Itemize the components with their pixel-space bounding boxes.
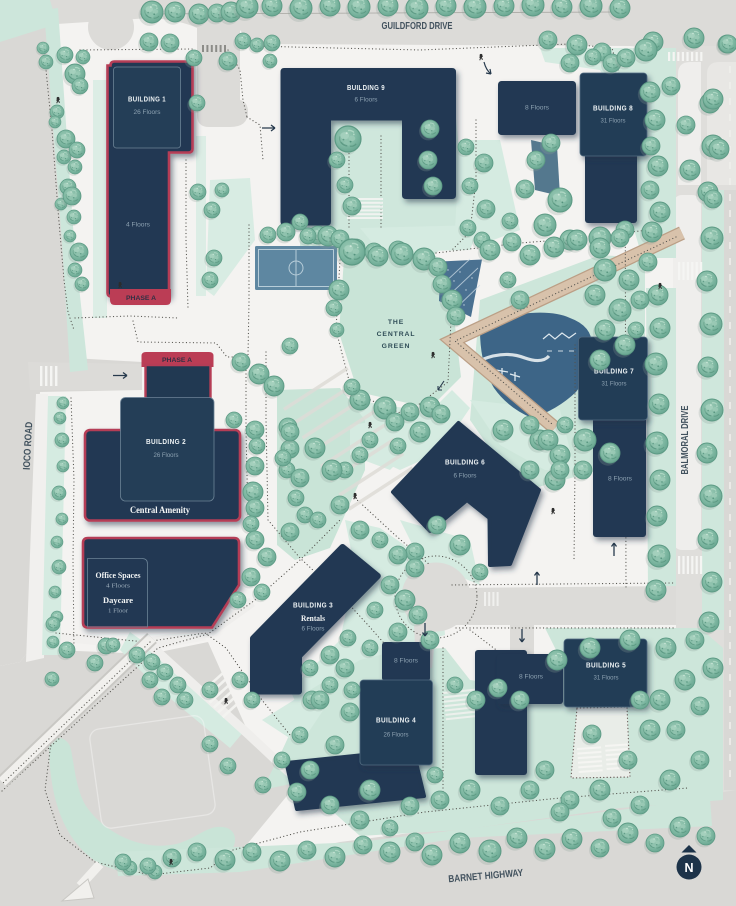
svg-text:4 Floors: 4 Floors <box>126 222 150 229</box>
svg-text:8 Floors: 8 Floors <box>525 105 549 112</box>
svg-text:BUILDING 6: BUILDING 6 <box>445 458 485 467</box>
svg-text:6 Floors: 6 Floors <box>355 97 378 104</box>
svg-text:BUILDING 8: BUILDING 8 <box>593 104 633 113</box>
svg-text:26 Floors: 26 Floors <box>154 452 179 459</box>
svg-text:1 Floor: 1 Floor <box>108 608 129 615</box>
svg-text:PHASE A: PHASE A <box>126 295 157 302</box>
svg-text:8 Floors: 8 Floors <box>519 674 543 681</box>
svg-text:BUILDING 1: BUILDING 1 <box>128 95 166 104</box>
svg-text:GREEN: GREEN <box>382 343 411 350</box>
svg-text:31 Floors: 31 Floors <box>594 675 619 682</box>
svg-text:26 Floors: 26 Floors <box>384 732 409 739</box>
svg-text:BUILDING 3: BUILDING 3 <box>293 601 333 610</box>
svg-text:26 Floors: 26 Floors <box>134 109 161 116</box>
svg-text:4 Floors: 4 Floors <box>106 583 130 590</box>
svg-text:Daycare: Daycare <box>103 596 133 605</box>
svg-text:BUILDING 2: BUILDING 2 <box>146 437 186 446</box>
svg-text:THE: THE <box>388 319 404 326</box>
svg-text:BUILDING 9: BUILDING 9 <box>347 83 385 92</box>
svg-text:Central Amenity: Central Amenity <box>130 505 190 515</box>
svg-text:6 Floors: 6 Floors <box>454 473 477 480</box>
svg-text:31 Floors: 31 Floors <box>602 381 627 388</box>
svg-text:BUILDING 5: BUILDING 5 <box>586 661 626 670</box>
svg-text:Office Spaces: Office Spaces <box>96 571 142 580</box>
svg-text:GUILDFORD DRIVE: GUILDFORD DRIVE <box>382 21 453 32</box>
svg-text:8 Floors: 8 Floors <box>394 658 418 665</box>
svg-text:31 Floors: 31 Floors <box>601 118 626 125</box>
svg-text:PHASE A: PHASE A <box>162 357 193 364</box>
svg-text:CENTRAL: CENTRAL <box>377 331 416 338</box>
svg-text:Rentals: Rentals <box>301 614 326 623</box>
svg-text:6 Floors: 6 Floors <box>302 626 325 633</box>
svg-text:BALMORAL DRIVE: BALMORAL DRIVE <box>680 405 691 474</box>
svg-text:8 Floors: 8 Floors <box>608 476 632 483</box>
svg-text:BUILDING 4: BUILDING 4 <box>376 716 416 725</box>
svg-text:N: N <box>684 861 693 875</box>
